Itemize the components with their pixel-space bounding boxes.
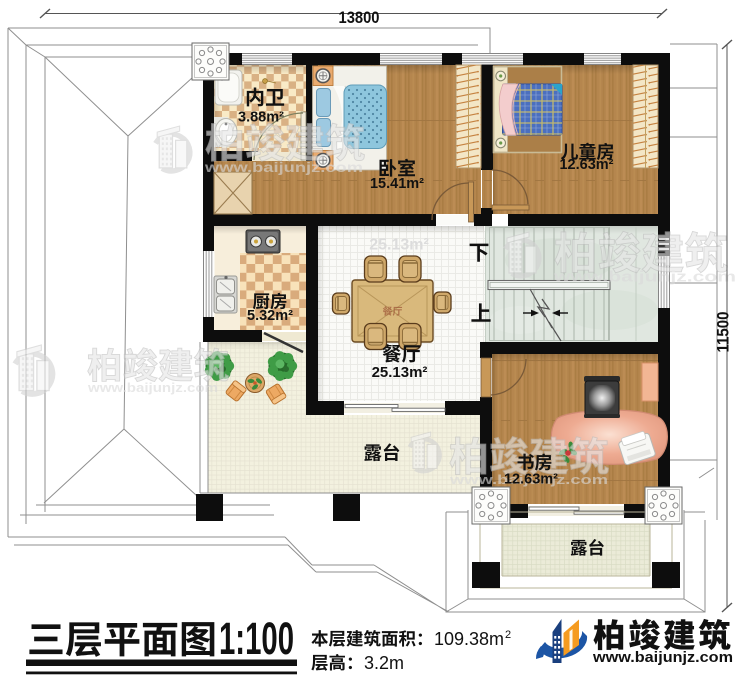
svg-text:www.baijunjz.com: www.baijunjz.com <box>87 381 218 395</box>
svg-text:5.32m²: 5.32m² <box>247 308 293 324</box>
svg-text:12.63m²: 12.63m² <box>559 157 613 173</box>
svg-text:25.13m²: 25.13m² <box>369 237 429 254</box>
svg-text:25.13m²: 25.13m² <box>372 364 428 381</box>
svg-text:www.baijunjz.com: www.baijunjz.com <box>592 649 733 666</box>
svg-text:15.41m²: 15.41m² <box>370 176 424 192</box>
svg-text:www.baijunjz.com: www.baijunjz.com <box>204 159 363 175</box>
svg-text:3.2m: 3.2m <box>364 653 404 673</box>
svg-text:2: 2 <box>505 629 511 641</box>
svg-text:1:100: 1:100 <box>219 613 294 664</box>
svg-text:109.38m: 109.38m <box>434 629 504 649</box>
svg-text:www.baijunjz.com: www.baijunjz.com <box>553 270 736 286</box>
svg-text:3.88m²: 3.88m² <box>238 110 284 126</box>
svg-text:13800: 13800 <box>339 8 380 27</box>
svg-text:11500: 11500 <box>714 312 733 353</box>
svg-text:12.63m²: 12.63m² <box>504 472 558 488</box>
